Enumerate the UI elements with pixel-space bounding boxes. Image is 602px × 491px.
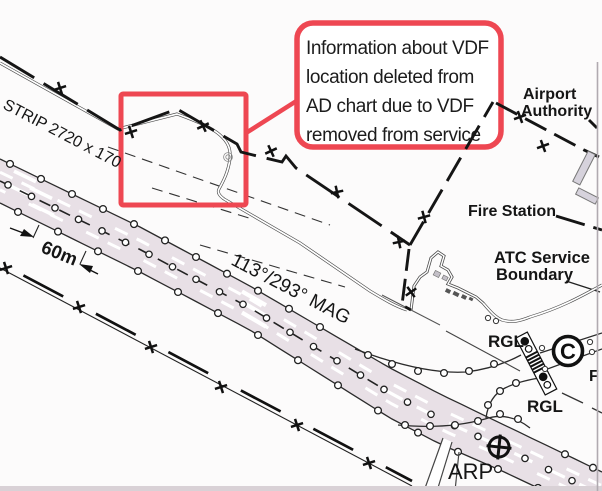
svg-text:Fire Station: Fire Station xyxy=(468,203,556,220)
svg-text:RGL: RGL xyxy=(488,332,524,351)
svg-text:C: C xyxy=(560,339,576,364)
svg-text:removed from service: removed from service xyxy=(306,125,481,146)
svg-text:ATC Service: ATC Service xyxy=(494,249,590,267)
svg-text:RGL: RGL xyxy=(527,397,563,416)
svg-text:Authority: Authority xyxy=(521,103,592,120)
svg-text:AD chart due to VDF: AD chart due to VDF xyxy=(306,96,474,117)
svg-text:ARP: ARP xyxy=(448,459,493,484)
svg-text:Airport: Airport xyxy=(523,86,577,103)
svg-text:location deleted from: location deleted from xyxy=(306,67,474,88)
svg-text:Boundary: Boundary xyxy=(496,266,574,284)
svg-text:Information about VDF: Information about VDF xyxy=(306,38,489,59)
